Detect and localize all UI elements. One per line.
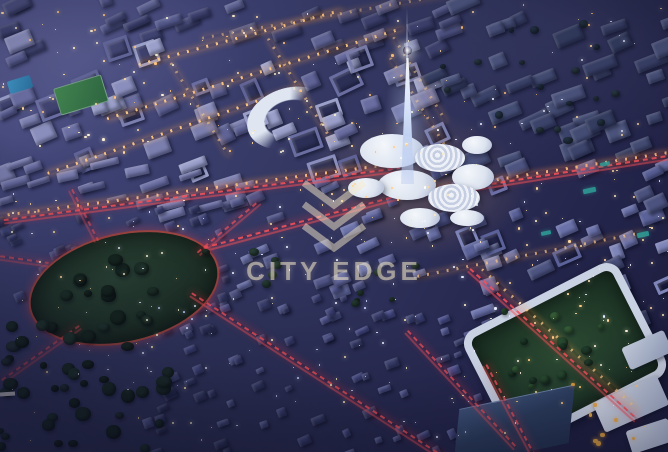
- light-speck: [417, 26, 418, 27]
- light-speck: [393, 146, 395, 148]
- light-speck: [599, 268, 600, 269]
- light-speck: [229, 150, 231, 152]
- light-speck: [415, 316, 416, 317]
- light-speck: [359, 345, 360, 346]
- light-speck: [473, 211, 474, 212]
- light-speck: [406, 237, 407, 238]
- light-speck: [79, 344, 80, 345]
- light-speck: [154, 62, 157, 65]
- light-speck: [161, 252, 163, 254]
- light-speck: [37, 274, 39, 276]
- light-speck: [233, 32, 234, 33]
- light-speck: [614, 195, 616, 197]
- light-speck: [149, 211, 151, 213]
- light-speck: [600, 364, 602, 366]
- light-speck: [211, 427, 212, 428]
- light-speck: [451, 398, 452, 399]
- light-speck: [39, 261, 41, 263]
- light-speck: [365, 196, 367, 198]
- light-speck: [34, 211, 36, 213]
- light-speck: [334, 114, 336, 116]
- light-speck: [643, 301, 644, 302]
- light-speck: [625, 330, 627, 332]
- light-speck: [453, 180, 454, 181]
- light-speck: [397, 20, 398, 21]
- light-speck: [252, 132, 254, 134]
- light-speck: [1, 12, 3, 14]
- light-speck: [286, 246, 288, 248]
- light-speck: [410, 225, 411, 226]
- light-speck: [335, 63, 336, 64]
- light-speck: [516, 401, 517, 402]
- light-speck: [556, 359, 557, 360]
- light-speck: [637, 123, 639, 125]
- light-speck: [108, 355, 109, 356]
- light-speck: [46, 371, 48, 373]
- light-speck: [504, 396, 505, 397]
- light-speck: [515, 422, 517, 424]
- light-speck: [177, 225, 179, 227]
- light-speck: [588, 280, 590, 282]
- light-speck: [243, 32, 245, 34]
- light-speck: [53, 231, 55, 233]
- light-speck: [663, 298, 664, 299]
- light-speck: [404, 319, 406, 321]
- light-speck: [578, 19, 579, 20]
- light-speck: [453, 402, 455, 404]
- light-speck: [227, 85, 229, 87]
- light-speck: [406, 144, 408, 146]
- light-speck: [137, 129, 139, 131]
- light-speck: [282, 150, 284, 152]
- light-speck: [393, 77, 395, 79]
- light-speck: [534, 322, 536, 324]
- light-speck: [658, 216, 659, 217]
- light-speck: [351, 390, 353, 392]
- light-speck: [427, 232, 429, 234]
- light-speck: [95, 103, 97, 105]
- window-lights-layer: [0, 0, 668, 452]
- light-speck: [364, 307, 366, 309]
- light-speck: [411, 220, 412, 221]
- light-speck: [103, 60, 105, 62]
- light-speck: [650, 307, 652, 309]
- light-speck: [547, 106, 549, 108]
- light-speck: [518, 227, 520, 229]
- light-speck: [136, 343, 137, 344]
- light-speck: [73, 47, 74, 48]
- light-speck: [178, 309, 180, 311]
- light-speck: [15, 27, 17, 29]
- light-speck: [616, 170, 617, 171]
- light-speck: [593, 403, 596, 406]
- light-speck: [114, 96, 116, 98]
- light-speck: [586, 77, 588, 79]
- light-speck: [272, 303, 273, 304]
- light-speck: [628, 267, 629, 268]
- light-speck: [528, 359, 530, 361]
- light-speck: [333, 200, 334, 201]
- light-speck: [407, 266, 409, 268]
- light-speck: [190, 103, 191, 104]
- light-speck: [579, 297, 580, 298]
- light-speck: [375, 164, 376, 165]
- light-speck: [276, 395, 278, 397]
- light-speck: [90, 30, 93, 33]
- light-speck: [644, 426, 645, 427]
- light-speck: [535, 391, 537, 393]
- light-speck: [156, 334, 157, 335]
- light-speck: [432, 245, 434, 247]
- light-speck: [642, 239, 644, 241]
- light-speck: [316, 349, 317, 350]
- light-speck: [464, 101, 465, 102]
- light-speck: [391, 54, 394, 57]
- light-speck: [397, 199, 399, 201]
- light-speck: [391, 242, 393, 244]
- light-speck: [279, 206, 281, 208]
- light-speck: [34, 412, 35, 413]
- light-speck: [576, 116, 578, 118]
- light-speck: [31, 233, 32, 234]
- light-speck: [183, 200, 184, 201]
- light-speck: [252, 142, 253, 143]
- light-speck: [249, 350, 250, 351]
- light-speck: [376, 332, 377, 333]
- light-speck: [408, 40, 410, 42]
- light-speck: [55, 29, 56, 30]
- light-speck: [186, 381, 187, 382]
- light-speck: [577, 264, 579, 266]
- light-speck: [509, 315, 510, 316]
- light-speck: [470, 227, 472, 229]
- light-speck: [603, 320, 604, 321]
- light-speck: [202, 40, 203, 41]
- light-speck: [579, 221, 581, 223]
- light-speck: [108, 217, 110, 219]
- light-speck: [519, 302, 521, 304]
- light-speck: [420, 152, 421, 153]
- light-speck: [593, 275, 594, 276]
- light-speck: [632, 437, 635, 440]
- light-speck: [142, 268, 143, 269]
- light-speck: [289, 108, 290, 109]
- light-speck: [382, 342, 384, 344]
- light-speck: [17, 338, 18, 339]
- aerial-city-render: CITY EDGE: [0, 0, 668, 452]
- light-speck: [261, 254, 263, 256]
- light-speck: [133, 221, 134, 222]
- light-speck: [349, 328, 350, 329]
- light-speck: [364, 241, 365, 242]
- light-speck: [106, 266, 108, 268]
- light-speck: [124, 78, 126, 80]
- light-speck: [112, 269, 113, 270]
- light-speck: [607, 319, 609, 321]
- light-speck: [436, 436, 438, 438]
- light-speck: [468, 401, 469, 402]
- light-speck: [537, 260, 538, 261]
- light-speck: [336, 259, 338, 261]
- light-speck: [194, 305, 196, 307]
- light-speck: [259, 275, 260, 276]
- light-speck: [146, 319, 148, 321]
- light-speck: [626, 367, 627, 368]
- light-speck: [492, 98, 493, 99]
- light-speck: [191, 318, 193, 320]
- light-speck: [461, 26, 463, 28]
- light-speck: [186, 327, 188, 329]
- light-speck: [138, 417, 139, 418]
- light-speck: [298, 118, 299, 119]
- light-speck: [541, 183, 542, 184]
- light-speck: [565, 258, 566, 259]
- light-speck: [365, 376, 366, 377]
- light-speck: [270, 223, 272, 225]
- light-speck: [571, 383, 575, 387]
- light-speck: [300, 90, 302, 92]
- light-speck: [589, 413, 592, 416]
- light-speck: [435, 85, 436, 86]
- light-speck: [250, 27, 252, 29]
- light-speck: [359, 126, 360, 127]
- light-speck: [271, 339, 273, 341]
- light-speck: [394, 218, 396, 220]
- light-speck: [226, 36, 227, 37]
- light-speck: [274, 73, 276, 75]
- light-speck: [343, 401, 345, 403]
- light-speck: [357, 76, 359, 78]
- light-speck: [659, 180, 660, 181]
- light-speck: [532, 264, 533, 265]
- light-speck: [147, 141, 149, 143]
- light-speck: [232, 272, 234, 274]
- light-speck: [306, 100, 308, 102]
- light-speck: [596, 441, 601, 446]
- light-speck: [30, 110, 32, 112]
- light-speck: [424, 228, 425, 229]
- light-speck: [400, 157, 402, 159]
- light-speck: [464, 304, 466, 306]
- light-speck: [52, 98, 54, 100]
- light-speck: [535, 220, 537, 222]
- light-speck: [36, 336, 37, 337]
- light-speck: [590, 45, 591, 46]
- light-speck: [256, 16, 258, 18]
- light-speck: [480, 123, 482, 125]
- light-speck: [575, 313, 576, 314]
- light-speck: [133, 226, 134, 227]
- light-speck: [143, 82, 145, 84]
- light-speck: [458, 205, 459, 206]
- light-speck: [236, 425, 237, 426]
- light-speck: [396, 123, 398, 125]
- light-speck: [418, 110, 419, 111]
- light-speck: [94, 29, 96, 31]
- light-speck: [446, 80, 447, 81]
- light-speck: [594, 345, 596, 347]
- light-speck: [352, 185, 353, 186]
- light-speck: [603, 315, 605, 317]
- light-speck: [172, 64, 174, 66]
- light-speck: [604, 259, 606, 261]
- light-speck: [476, 164, 477, 165]
- light-speck: [233, 298, 234, 299]
- light-speck: [471, 129, 472, 130]
- light-speck: [39, 145, 40, 146]
- light-speck: [545, 212, 547, 214]
- light-speck: [610, 21, 611, 22]
- light-speck: [235, 253, 236, 254]
- light-speck: [395, 299, 396, 300]
- light-speck: [22, 107, 24, 109]
- light-speck: [561, 402, 563, 404]
- light-speck: [552, 336, 554, 338]
- light-speck: [78, 373, 80, 375]
- light-speck: [526, 210, 527, 211]
- light-speck: [351, 122, 353, 124]
- light-speck: [351, 145, 353, 147]
- light-speck: [619, 35, 620, 36]
- light-speck: [208, 239, 210, 241]
- light-speck: [455, 139, 456, 140]
- light-speck: [123, 273, 125, 275]
- light-speck: [205, 269, 206, 270]
- light-speck: [434, 214, 436, 216]
- light-speck: [474, 350, 475, 351]
- light-speck: [166, 17, 168, 19]
- light-speck: [22, 300, 23, 301]
- light-speck: [134, 102, 136, 104]
- light-speck: [343, 189, 345, 191]
- light-speck: [411, 111, 413, 113]
- light-speck: [588, 24, 590, 26]
- light-speck: [579, 386, 581, 388]
- light-speck: [30, 203, 31, 204]
- light-speck: [330, 384, 332, 386]
- light-speck: [437, 129, 439, 131]
- light-speck: [589, 356, 590, 357]
- light-speck: [322, 204, 324, 206]
- light-speck: [55, 200, 57, 202]
- light-speck: [3, 83, 5, 85]
- light-speck: [133, 382, 134, 383]
- light-speck: [621, 130, 623, 132]
- light-speck: [490, 318, 492, 320]
- light-speck: [496, 372, 497, 373]
- light-speck: [441, 358, 442, 359]
- light-speck: [63, 74, 64, 75]
- light-speck: [520, 372, 521, 373]
- light-speck: [119, 64, 121, 66]
- light-speck: [103, 14, 105, 16]
- light-speck: [344, 356, 346, 358]
- light-speck: [271, 297, 273, 299]
- light-speck: [90, 288, 91, 289]
- light-speck: [504, 432, 506, 434]
- light-speck: [205, 367, 207, 369]
- light-speck: [42, 24, 43, 25]
- light-speck: [623, 40, 625, 42]
- light-speck: [319, 364, 321, 366]
- light-speck: [464, 376, 465, 377]
- light-speck: [322, 124, 325, 127]
- light-speck: [229, 363, 230, 364]
- light-speck: [227, 129, 228, 130]
- light-speck: [11, 231, 13, 233]
- light-speck: [147, 343, 148, 344]
- light-speck: [553, 318, 554, 319]
- light-speck: [288, 138, 290, 140]
- light-speck: [461, 276, 463, 278]
- light-speck: [57, 11, 59, 13]
- light-speck: [297, 377, 299, 379]
- light-speck: [494, 307, 496, 309]
- light-speck: [161, 94, 163, 96]
- light-speck: [579, 305, 581, 307]
- light-speck: [29, 39, 31, 41]
- light-speck: [295, 401, 296, 402]
- light-speck: [182, 228, 184, 230]
- light-speck: [366, 300, 368, 302]
- light-speck: [389, 382, 390, 383]
- light-speck: [184, 387, 185, 388]
- light-speck: [12, 389, 13, 390]
- light-speck: [567, 293, 569, 295]
- light-speck: [630, 264, 631, 265]
- light-speck: [406, 367, 408, 369]
- light-speck: [445, 174, 447, 176]
- light-speck: [254, 30, 255, 31]
- light-speck: [147, 367, 148, 368]
- light-speck: [201, 439, 203, 441]
- light-speck: [15, 201, 16, 202]
- light-speck: [439, 193, 440, 194]
- light-speck: [158, 307, 160, 309]
- light-speck: [551, 389, 552, 390]
- light-speck: [87, 134, 89, 136]
- light-speck: [614, 179, 616, 181]
- light-speck: [281, 237, 283, 239]
- light-speck: [229, 60, 230, 61]
- light-speck: [584, 175, 585, 176]
- light-speck: [58, 307, 59, 308]
- light-speck: [621, 134, 623, 136]
- light-speck: [205, 315, 207, 317]
- light-speck: [584, 301, 585, 302]
- light-speck: [495, 89, 496, 90]
- light-speck: [543, 110, 545, 112]
- light-speck: [341, 200, 342, 201]
- light-speck: [442, 153, 444, 155]
- light-speck: [334, 141, 335, 142]
- light-speck: [440, 50, 441, 51]
- light-speck: [403, 421, 405, 423]
- light-speck: [68, 127, 69, 128]
- light-speck: [235, 195, 237, 197]
- light-speck: [123, 151, 125, 153]
- light-speck: [424, 115, 425, 116]
- light-speck: [581, 59, 583, 61]
- light-speck: [237, 72, 239, 74]
- light-speck: [472, 229, 474, 231]
- light-speck: [172, 422, 173, 423]
- light-speck: [78, 132, 79, 133]
- light-speck: [372, 217, 373, 218]
- light-speck: [480, 241, 482, 243]
- light-speck: [13, 193, 15, 195]
- light-speck: [612, 170, 614, 172]
